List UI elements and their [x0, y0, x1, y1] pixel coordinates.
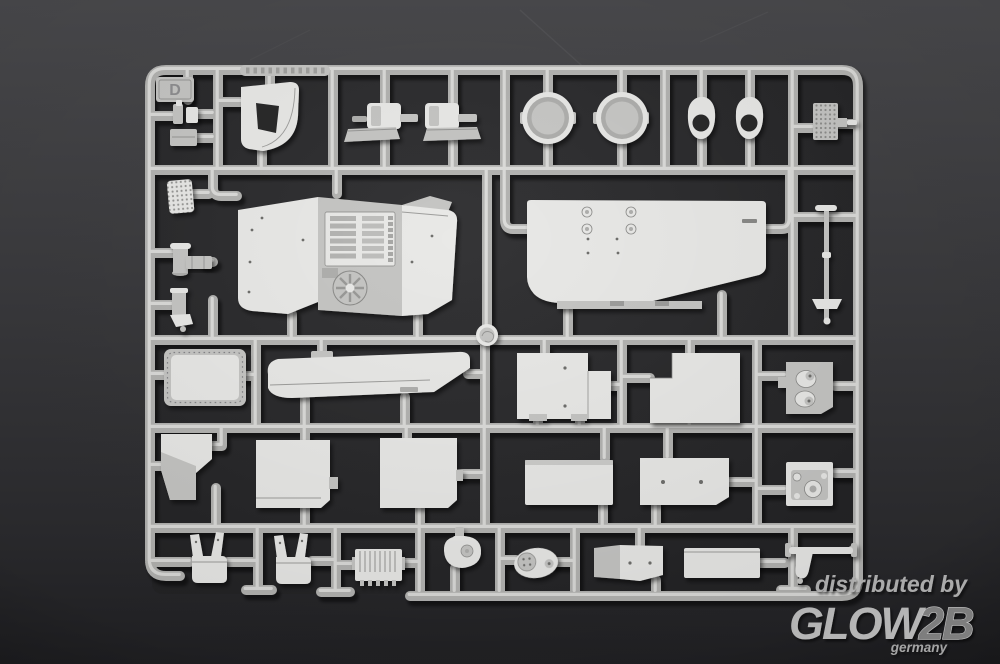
photo-stage: D: [0, 0, 1000, 664]
watermark: distributed by GLOW 2B germany: [789, 571, 973, 655]
watermark-country: germany: [890, 640, 949, 655]
sprue-photo: D: [0, 0, 1000, 664]
watermark-line1: distributed by: [815, 571, 968, 597]
vignette: [0, 0, 1000, 664]
